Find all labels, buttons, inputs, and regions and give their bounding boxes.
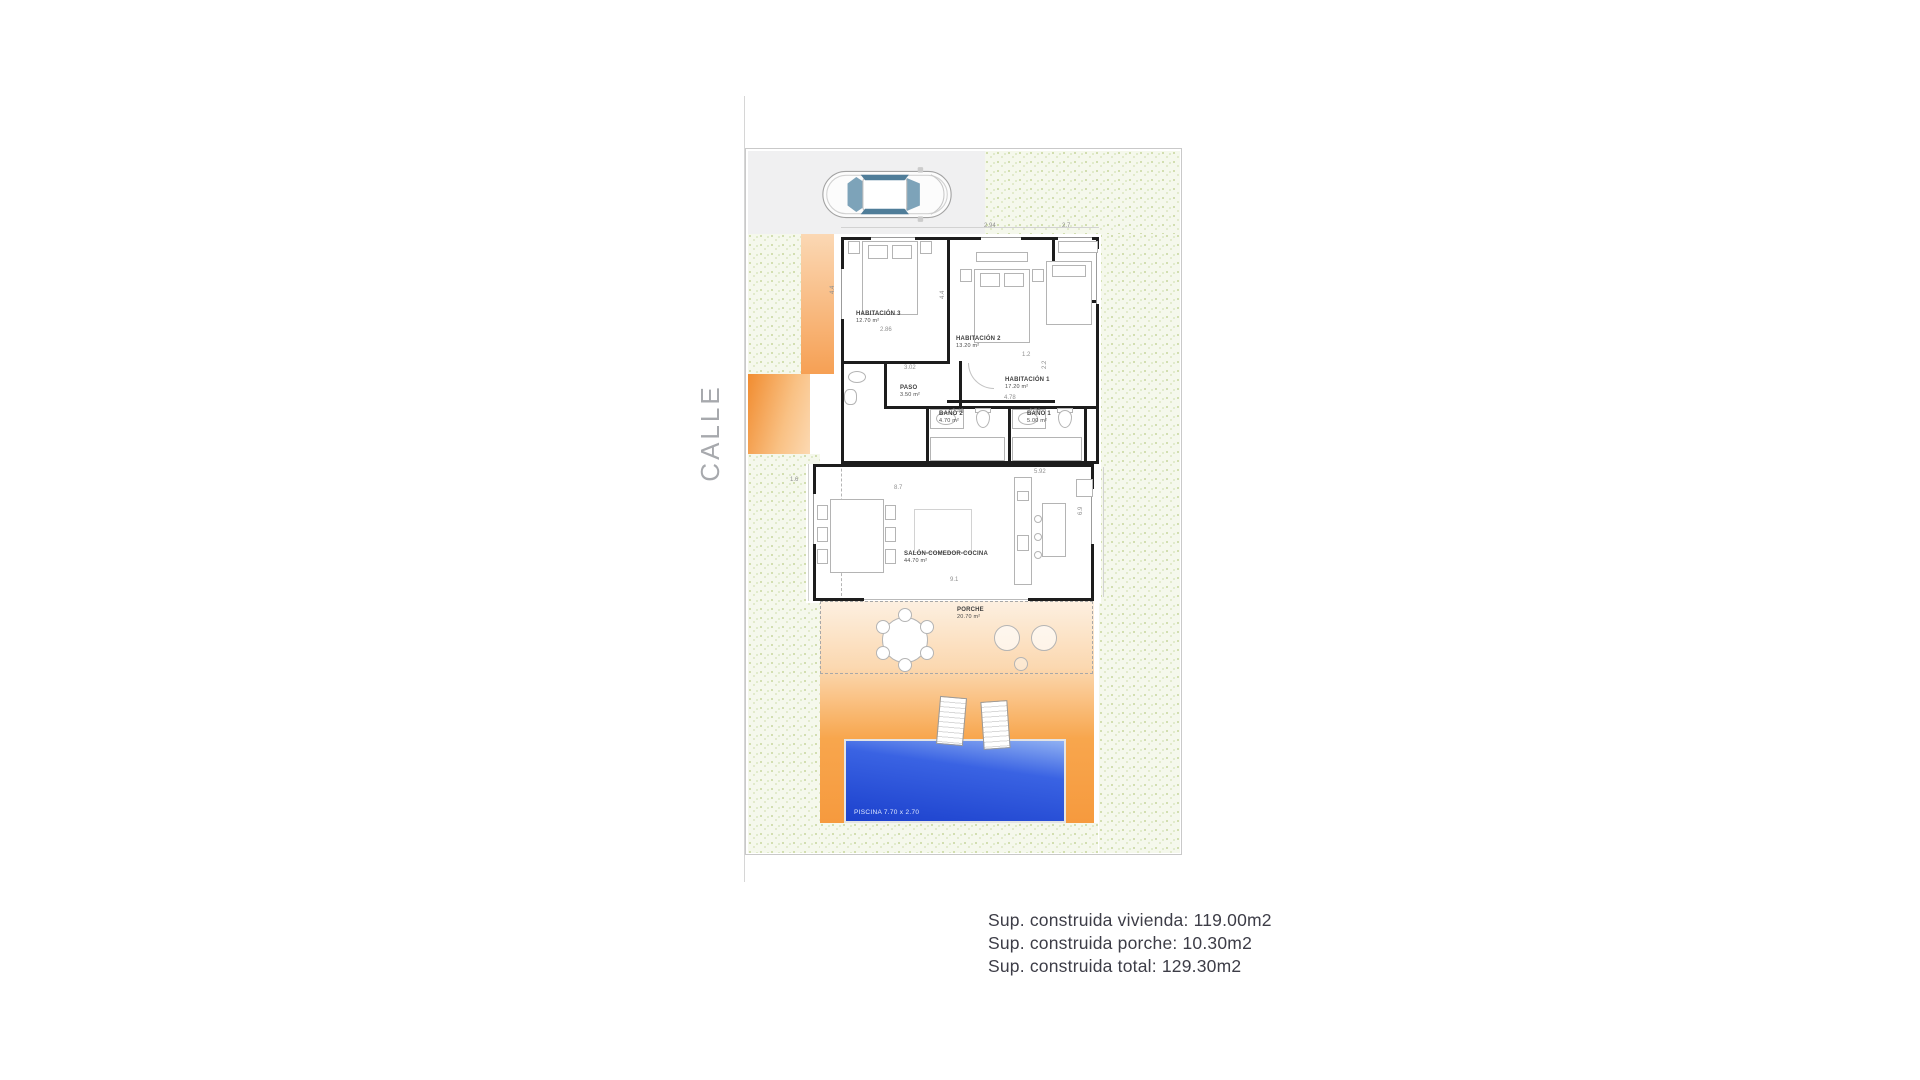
street-name-label: CALLE bbox=[695, 378, 725, 488]
kitchen-hob bbox=[1017, 535, 1029, 551]
window-closet-top bbox=[1058, 237, 1092, 240]
dimension-label: 4.4 bbox=[830, 286, 836, 294]
pillow bbox=[892, 245, 912, 259]
wall-bano2-left bbox=[926, 406, 929, 464]
porch-chair bbox=[876, 620, 890, 634]
dimension-label: 2.70 bbox=[1029, 409, 1041, 415]
dining-chair bbox=[885, 505, 896, 520]
window-hab3-top bbox=[871, 237, 915, 240]
toilet-wc bbox=[844, 389, 857, 405]
wall-paso-right bbox=[959, 361, 962, 409]
pool-label: PISCINA 7.70 x 2.70 bbox=[854, 809, 919, 816]
dimension-label: 2.7 bbox=[1062, 223, 1070, 229]
window-hab1-right bbox=[1096, 249, 1099, 304]
porch-chair bbox=[920, 620, 934, 634]
grass-area-bottom bbox=[820, 823, 1098, 853]
porch-chair bbox=[920, 646, 934, 660]
nightstand bbox=[848, 241, 860, 254]
dining-chair bbox=[885, 549, 896, 564]
dimension-label: 1.6 bbox=[790, 477, 798, 483]
closet-hab1 bbox=[1058, 241, 1098, 253]
nightstand bbox=[960, 269, 972, 282]
dimension-label: 9.1 bbox=[950, 577, 958, 583]
dining-chair bbox=[817, 549, 828, 564]
grass-area-left-top bbox=[748, 234, 801, 374]
dimension-line-top bbox=[841, 227, 1099, 228]
stool bbox=[1034, 533, 1042, 541]
shower-bano2 bbox=[930, 437, 1005, 461]
kitchen-island bbox=[1042, 503, 1066, 557]
dimension-label: 8.7 bbox=[894, 485, 902, 491]
dining-table bbox=[830, 499, 884, 573]
porch-chair bbox=[898, 608, 912, 622]
wall-hab3-hab2 bbox=[947, 237, 950, 363]
stool bbox=[1034, 551, 1042, 559]
summary-line: Sup. construida total: 129.30m2 bbox=[988, 955, 1272, 978]
lounge-chair bbox=[1031, 625, 1057, 651]
porch-chair bbox=[898, 658, 912, 672]
dimension-label: 1.2 bbox=[1022, 352, 1030, 358]
wall-wc-right bbox=[884, 361, 887, 409]
stool bbox=[1034, 515, 1042, 523]
orange-entry-pad bbox=[748, 374, 810, 454]
salon-door-track bbox=[864, 599, 1028, 600]
summary-line: Sup. construida porche: 10.30m2 bbox=[988, 932, 1272, 955]
window-hab2-top bbox=[981, 237, 1021, 240]
dimension-line-right bbox=[1103, 467, 1104, 597]
room-label-habitacion-2: HABITACIÓN 213.20 m² bbox=[956, 336, 1001, 350]
side-table bbox=[1014, 657, 1028, 671]
dimension-label: 6.9 bbox=[1078, 507, 1084, 515]
area-summary: Sup. construida vivienda: 119.00m2Sup. c… bbox=[988, 909, 1272, 978]
sink-wc bbox=[848, 371, 866, 383]
pillow bbox=[1004, 273, 1024, 287]
dimension-label: 4.4 bbox=[940, 291, 946, 299]
dimension-label: 3.02 bbox=[904, 365, 916, 371]
dimension-label: 2.86 bbox=[880, 327, 892, 333]
pillow bbox=[868, 245, 888, 259]
wall-hab2-bottom bbox=[947, 400, 1055, 403]
dimension-label: 2.94 bbox=[984, 223, 996, 229]
room-label-habitacion-3: HABITACIÓN 312.70 m² bbox=[856, 311, 901, 325]
fridge bbox=[1076, 479, 1093, 497]
room-label-habitacion-1: HABITACIÓN 117.20 m² bbox=[1005, 377, 1050, 391]
dimension-label: 2.46 bbox=[952, 409, 964, 415]
orange-path-strip bbox=[801, 234, 834, 374]
window-hab3-left bbox=[841, 269, 844, 319]
shower-bano1 bbox=[1012, 437, 1082, 461]
nightstand bbox=[920, 241, 932, 254]
dining-chair bbox=[817, 505, 828, 520]
wall-banos-middle bbox=[1008, 406, 1011, 464]
window-salon-left bbox=[813, 494, 816, 544]
grass-area-right bbox=[1099, 234, 1180, 853]
site-plan-plot: PISCINA 7.70 x 2.70 bbox=[745, 148, 1182, 855]
dining-chair bbox=[885, 527, 896, 542]
room-label-porche: PORCHE20.70 m² bbox=[957, 607, 984, 621]
room-label-salon: SALÓN-COMEDOR-COCINA44.70 m² bbox=[904, 551, 988, 565]
swimming-pool: PISCINA 7.70 x 2.70 bbox=[844, 739, 1066, 823]
sun-lounger bbox=[980, 700, 1010, 750]
car-top-view-icon bbox=[816, 166, 958, 223]
sun-lounger bbox=[936, 696, 967, 746]
porch-chair bbox=[876, 646, 890, 660]
dining-chair bbox=[817, 527, 828, 542]
dimension-label: 2.2 bbox=[1042, 361, 1048, 369]
pillow bbox=[980, 273, 1000, 287]
kitchen-sink bbox=[1017, 491, 1029, 501]
nightstand bbox=[1032, 269, 1044, 282]
summary-line: Sup. construida vivienda: 119.00m2 bbox=[988, 909, 1272, 932]
pillow bbox=[1052, 265, 1086, 277]
dimension-line-left bbox=[808, 464, 809, 601]
desk-hab2 bbox=[976, 252, 1028, 262]
room-label-paso: PASO3.50 m² bbox=[900, 385, 920, 399]
lounge-chair bbox=[994, 625, 1020, 651]
dimension-label: 4.78 bbox=[1004, 395, 1016, 401]
wall-hab3-bottom bbox=[841, 361, 950, 364]
dimension-label: 5.92 bbox=[1034, 469, 1046, 475]
rug bbox=[914, 509, 972, 553]
wall-bano1-right bbox=[1084, 406, 1087, 464]
grass-area-top-right bbox=[985, 151, 1180, 234]
window-salon-right bbox=[1091, 489, 1094, 544]
